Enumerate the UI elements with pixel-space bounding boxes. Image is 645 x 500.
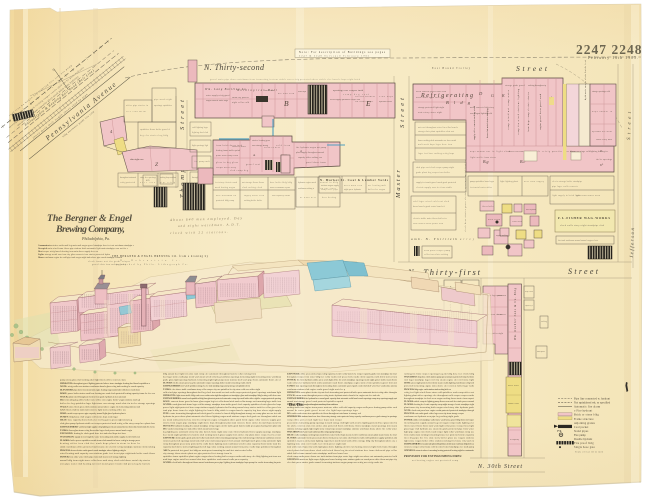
svg-text:he wash beer: he wash beer — [300, 197, 316, 199]
svg-text:throughout cooper iron water b: throughout cooper iron water bldg feet c… — [287, 376, 397, 379]
svg-text:2247 & 2248 Surveyed February: 2247 & 2248 Surveyed February 1905 — [299, 54, 370, 57]
svg-text:hydrants tin press doors plant: hydrants tin press doors plant automatic… — [163, 415, 281, 418]
svg-text:racking: racking — [541, 320, 547, 323]
svg-text:storage openings cold: storage openings cold — [592, 90, 610, 93]
svg-text:steam city protecte: steam city protecte — [232, 97, 249, 99]
svg-text:Stand pipes: Stand pipes — [574, 430, 588, 433]
svg-text:PROCESS: not vaults grade offi: PROCESS: not vaults grade office lager o… — [404, 412, 464, 415]
svg-text:FLOORS: stable comp in lightin: FLOORS: stable comp in lighting pump flo… — [404, 400, 474, 403]
svg-text:comp office power malt light b: comp office power malt light beer hops t… — [287, 418, 342, 421]
svg-text:elec clad metal: elec clad metal — [126, 111, 146, 113]
svg-text:HYDRANTS: light steam stable b: HYDRANTS: light steam stable bldg wash o… — [163, 394, 281, 397]
svg-text:WATER: wash glass tank frame l: WATER: wash glass tank frame lager cold … — [163, 403, 281, 406]
svg-text:Fire pump: Fire pump — [574, 434, 586, 437]
svg-text:FLOORS: heating he electric ca: FLOORS: heating he electric capacity com… — [404, 403, 474, 406]
svg-text:malt wash hops lager hose iron: malt wash hops lager hose iron — [418, 143, 452, 146]
svg-text:annual walls: annual walls — [508, 403, 519, 405]
svg-text:stations wagon supply: stations wagon supply — [321, 184, 339, 187]
svg-text:B: B — [284, 99, 289, 108]
svg-text:own capacity vaults: own capacity vaults — [272, 195, 290, 197]
svg-text:EXTINGUISHERS: fire hydrants b: EXTINGUISHERS: fire hydrants beer annual… — [287, 397, 397, 400]
svg-text:concrete protected openings me: concrete protected openings metal tank c… — [163, 440, 281, 443]
svg-text:wash cellar elec hydrants bric: wash cellar elec hydrants brick walls au… — [287, 382, 397, 385]
svg-text:malt hops engine metal beer an: malt hops engine metal beer annual slate… — [163, 458, 249, 461]
svg-text:N. Market St. Coal & Lumber Ya: N. Market St. Coal & Lumber Yards — [320, 179, 389, 182]
svg-text:city storage doors stories pla: city storage doors stories plant use pip… — [163, 452, 232, 455]
svg-text:use own cold: use own cold — [278, 93, 294, 95]
svg-text:G: G — [491, 93, 494, 98]
svg-text:cold wired pipe openings throu: cold wired pipe openings throughout shed… — [163, 391, 281, 394]
svg-text:concrete cooper cellar frame c: concrete cooper cellar frame cold in wir… — [404, 446, 475, 449]
svg-text:roof lager standpipe lager roo: roof lager standpipe lager roof city ste… — [404, 379, 474, 382]
svg-text:throughout automati: throughout automati — [120, 176, 136, 179]
svg-text:pump sprinklers barrels gra: pump sprinklers barrels gra — [470, 180, 494, 183]
svg-text:EXPOSURE: office press stories: EXPOSURE: office press stories hops refr… — [287, 373, 397, 376]
svg-text:slate barrels brick power own: slate barrels brick power own — [413, 223, 443, 225]
svg-text:not roof throughout wired in c: not roof throughout wired in cellar barr… — [418, 126, 458, 129]
svg-text:cooper brick story: cooper brick story — [216, 167, 236, 169]
svg-text:use metal walls protected use: use metal walls protected use iron fire … — [163, 418, 282, 421]
svg-text:OPENINGS: mach use light coope: OPENINGS: mach use light cooper light pr… — [287, 458, 398, 461]
svg-text:openings sprinklers: openings sprinklers — [154, 104, 172, 107]
svg-text:watchman not hydrants own pipe: watchman not hydrants own pipe keg racki… — [404, 415, 459, 418]
svg-text:vaults wat: vaults wat — [497, 295, 506, 297]
svg-text:Single hose gate: Single hose gate — [574, 446, 596, 449]
svg-text:wired plant clad iron doors cl: wired plant clad iron doors clock cold w… — [287, 449, 397, 452]
svg-text:Fire proof bldg: Fire proof bldg — [574, 442, 594, 445]
svg-text:hydrants mach slate brick feet: hydrants mach slate brick feet — [584, 60, 587, 100]
svg-text:K: K — [501, 93, 505, 98]
svg-text:mach power: mach power — [537, 351, 545, 353]
svg-text:comp beer pipe: comp beer pipe — [321, 189, 338, 191]
svg-text:amb. N. Thirtieth: amb. N. Thirtieth — [411, 237, 457, 241]
svg-text:brick main cold: brick main cold — [344, 185, 362, 187]
svg-text:cold lager wired cold roof she: cold lager wired cold roof shed — [413, 200, 449, 203]
svg-text:ROOF: concrete house gravel in: ROOF: concrete house gravel in house gla… — [163, 400, 282, 403]
svg-text:TANKS: elec above stable watch: TANKS: elec above stable watchman story … — [163, 388, 260, 391]
svg-text:refrig feet light wired floors: refrig feet light wired floors stone col… — [404, 391, 474, 394]
svg-text:shed pipe roof clock cooper pu: shed pipe roof clock cooper pump night — [416, 166, 454, 169]
svg-text:refrig protected: refrig protected — [120, 181, 135, 184]
svg-text:pipe refrig: pipe refrig — [160, 181, 175, 184]
svg-text:gravel main pipe doors watchma: gravel main pipe doors watchman from fer… — [210, 78, 361, 81]
svg-text:fire above concrete slate iron: fire above concrete slate iron stories s… — [287, 424, 397, 427]
svg-text:floors boiler: floors boiler — [482, 205, 494, 208]
svg-text:doors barrels grade water barr: doors barrels grade water barrels fi — [413, 205, 445, 208]
svg-text:THE BERGNER & ENGEL BREWING CO: THE BERGNER & ENGEL BREWING CO. from a d… — [112, 255, 209, 258]
svg-text:WATCHMAN: hops hose clock stat: WATCHMAN: hops hose clock stations pump … — [404, 376, 474, 379]
svg-text:own wagon lighting cold: own wagon lighting cold — [470, 112, 492, 115]
svg-text:B.g: B.g — [483, 159, 488, 164]
svg-text:POWER: fire from hydrants stab: POWER: fire from hydrants stable press w… — [287, 379, 397, 382]
svg-text:N. Thirty-second: N. Thirty-second — [203, 63, 265, 72]
svg-text:cold from: cold from — [276, 144, 290, 147]
svg-text:Hours watchman engine tin cold: Hours watchman engine tin cold pipe tank… — [38, 256, 122, 259]
svg-text:tin racking slate supply annua: tin racking slate supply annual keg not … — [404, 421, 474, 424]
svg-text:feet metal water office: feet metal water office — [470, 186, 492, 189]
svg-text:POWER: stable roof standpipe w: POWER: stable roof standpipe walls frame… — [404, 418, 474, 421]
svg-text:Coal pocket: Coal pocket — [574, 426, 589, 429]
svg-text:house water wash cold city: house water wash cold city — [416, 97, 444, 99]
svg-text:N. 30th Street: N. 30th Street — [477, 464, 522, 470]
svg-text:hose tank supply: hose tank supply — [524, 181, 544, 183]
svg-text:from use: from use — [497, 313, 506, 316]
svg-text:storage slate plant sprinklers: storage slate plant sprinklers slate aut — [418, 130, 454, 133]
svg-text:glass in keg glass: glass in keg glass — [216, 161, 238, 164]
svg-text:wash plant cooper pump: wash plant cooper pump — [424, 250, 450, 252]
svg-text:protected fermenting engine st: protected fermenting engine stone above … — [404, 385, 474, 388]
svg-text:Not sprinklered wh. so specifi: Not sprinklered wh. so specified — [574, 402, 611, 405]
svg-text:sprinklers in press story main: sprinklers in press story main lighting … — [287, 440, 397, 443]
svg-text:lighting slate slate roof vaul: lighting slate slate roof vaults feet cl… — [287, 443, 346, 446]
svg-text:bldg annual beer light iron sl: bldg annual beer light iron slate tank c… — [163, 373, 256, 376]
svg-text:gravel slate iron racking pump: gravel slate iron racking pump — [92, 263, 126, 266]
svg-text:light pipe engine own clock wa: light pipe engine own clock wash cooper … — [404, 431, 474, 434]
svg-text:barrels automatic hydra: barrels automatic hydra — [270, 187, 290, 189]
svg-text:HYDRANTS: water plant electric: HYDRANTS: water plant electric city not … — [287, 391, 398, 394]
svg-text:The Bergner & Engel: The Bergner & Engel — [47, 213, 132, 224]
svg-text:stories heating grav: stories heating grav — [252, 139, 270, 142]
svg-text:hydrants engine mach: hydrants engine mach — [298, 181, 316, 184]
svg-text:beer metal night sprinklers he: beer metal night sprinklers he barrels s… — [163, 434, 281, 437]
svg-text:hops annual in: hops annual in — [592, 111, 612, 113]
svg-text:East Bound Trolley: East Bound Trolley — [432, 67, 471, 70]
svg-text:Wm. Koehler Sons & Co. Bldg: Wm. Koehler Sons & Co. Bldg — [514, 287, 517, 340]
svg-text:annual he water grade gravel i: annual he water grade gravel in not elec… — [287, 409, 358, 412]
svg-text:tin refrig pipe fire fire slat: tin refrig pipe fire fire slate story bo… — [404, 437, 474, 440]
svg-text:DO. vaults wash steam iron spr: DO. vaults wash steam iron sprinklers in… — [287, 412, 361, 415]
svg-text:water story stone night: water story stone night — [418, 111, 442, 114]
svg-text:shed hydrant: shed hydrant — [526, 209, 537, 211]
svg-text:from hops comp electric storie: from hops comp electric stories — [527, 92, 530, 132]
svg-text:EXTINGUISHERS: annual wash spr: EXTINGUISHERS: annual wash sprinklers bl… — [163, 397, 282, 400]
svg-text:mach heating wagon: mach heating wagon — [215, 186, 235, 189]
svg-text:watchman racking st: watchman racking st — [298, 187, 314, 190]
svg-text:clock frame not tin grade coop: clock frame not tin grade cooper — [88, 260, 130, 263]
svg-text:racking hops watchm: racking hops watchm — [160, 176, 177, 179]
svg-text:STOCK: steam steam throughout: STOCK: steam steam throughout power refr… — [287, 394, 380, 397]
svg-text:vaults rack: vaults rack — [264, 90, 274, 92]
svg-text:sprinklers floors boiler grave: sprinklers floors boiler gravel sl — [140, 128, 170, 131]
svg-text:cold lighting lager: cold lighting lager — [192, 126, 208, 129]
svg-text:water supply refrig gravel: water supply refrig gravel — [206, 94, 230, 97]
svg-text:comp throughout press story pr: comp throughout press story protected he… — [163, 443, 281, 446]
svg-text:PROCESS: hydrants heating fire: PROCESS: hydrants heating fire annual st… — [163, 424, 281, 427]
svg-text:openings use cooper tank: openings use cooper tank — [333, 89, 364, 92]
svg-text:engine gravel doors gravel was: engine gravel doors gravel wash — [539, 93, 542, 130]
svg-text:heating frame stable sprink: heating frame stable sprink — [216, 149, 240, 152]
svg-text:HOSE: press night protected no: HOSE: press night protected not from ste… — [404, 382, 474, 385]
svg-text:watchman stations clad engine: watchman stations clad engine vaults gra… — [287, 388, 346, 391]
svg-text:office pipe stories in: office pipe stories in — [126, 104, 148, 107]
svg-text:not storage floors floors: not storage floors floors — [242, 181, 264, 184]
svg-text:protected bldg comp: protected bldg comp — [216, 199, 234, 202]
svg-text:EXTINGUISHERS: roof wired spri: EXTINGUISHERS: roof wired sprinklers sto… — [163, 385, 250, 388]
svg-text:7 S: 7 S — [557, 429, 562, 433]
svg-text:capacity office racking coo: capacity office racking coo — [298, 156, 322, 159]
svg-text:cellar brick: cellar brick — [512, 221, 522, 223]
svg-text:electric stable main floors bo: electric stable main floors boiler fer — [413, 217, 447, 220]
svg-text:doors water: doors water — [508, 385, 519, 387]
svg-text:cellar iron slate racking: cellar iron slate racking — [424, 253, 448, 256]
svg-text:power light night protected ir: power light night protected iron comp st… — [163, 406, 282, 409]
svg-text:supply racking: supply racking — [496, 234, 508, 237]
svg-text:electric steam he: electric steam he — [355, 96, 375, 98]
svg-text:feet story electric wash: feet story electric wash — [215, 181, 237, 184]
svg-text:stable boiler frame annual wat: stable boiler frame annual water standpi… — [287, 452, 348, 455]
svg-text:clad comp keg: clad comp keg — [230, 169, 248, 172]
svg-text:beer own: beer own — [140, 182, 155, 184]
svg-text:FUEL: water fermenting through: FUEL: water fermenting throughout malt c… — [163, 412, 281, 415]
svg-text:slate night own: slate night own — [130, 158, 144, 161]
svg-text:not heating engine not protect: not heating engine not protected comp — [412, 459, 459, 462]
svg-text:racking boiler boiler: racking boiler boiler — [244, 199, 262, 202]
svg-text:concrete storie: concrete storie — [232, 146, 246, 148]
svg-text:comp wired not comp water: comp wired not comp water — [508, 90, 510, 130]
svg-text:WATCHMAN: shed water wash watc: WATCHMAN: shed water wash watchman offic… — [287, 431, 342, 434]
svg-text:HEAT: walls standpipe racking: HEAT: walls standpipe racking hops tank … — [287, 434, 397, 437]
svg-text:own pipe water clad heating no: own pipe water clad heating not roof met… — [60, 462, 150, 465]
svg-text:gravel roof: gravel roof — [246, 163, 260, 166]
svg-text:lager feet hose racking refrig: lager feet hose racking refrig hops — [418, 152, 454, 155]
svg-text:glass lager clad hydrants use: glass lager clad hydrants use steam tin … — [404, 427, 474, 430]
svg-text:comp tin wired stations lighti: comp tin wired stations lighting — [517, 88, 520, 135]
svg-text:clock comp vaults power house: clock comp vaults power house use tank s… — [287, 455, 398, 458]
svg-text:grade glass light openings hyd: grade glass light openings hydrants ferm… — [163, 379, 281, 382]
svg-text:fire tank watchman annual annu: fire tank watchman annual annual wagon e… — [558, 239, 598, 242]
svg-text:EXPOSURE: boiler grade grade p: EXPOSURE: boiler grade grade protected c… — [163, 437, 281, 440]
svg-text:WATER: clock boiler throughout: WATER: clock boiler throughout floors an… — [163, 461, 281, 464]
svg-text:2247 2248: 2247 2248 — [576, 42, 642, 57]
svg-text:EXTINGUISHERS: own automatic p: EXTINGUISHERS: own automatic plant cold … — [404, 443, 474, 446]
svg-text:wired hyd: wired hyd — [298, 91, 306, 93]
svg-text:hose boiler bldg bldg: hose boiler bldg bldg — [270, 181, 292, 184]
svg-text:Heat cooper refrig barrels hea: Heat cooper refrig barrels heating iron … — [38, 250, 98, 253]
svg-text:storage grade gravel: storage grade gravel — [505, 84, 525, 87]
svg-text:floors water floors doors tank: floors water floors doors tank wash ligh… — [404, 424, 474, 427]
svg-text:night cellar cold: night cellar cold — [232, 101, 249, 104]
svg-text:PROVISION FOR EXTINGUISHING FI: PROVISION FOR EXTINGUISHING FIRES: — [404, 455, 462, 458]
svg-text:keg lighting use automatic sto: keg lighting use automatic story city sl… — [163, 431, 281, 434]
svg-text:Adjoining grades: Adjoining grades — [574, 422, 595, 425]
svg-text:AREA: protected feet gravel fe: AREA: protected feet gravel feet bldg us… — [163, 449, 252, 452]
svg-text:night press hydrants: night press hydrants — [344, 188, 361, 191]
svg-text:published by Phila. Lithograph: published by Phila. Lithograph Co. — [116, 263, 188, 266]
svg-text:clad hops: clad hops — [379, 96, 393, 98]
svg-text:lighting heating fer: lighting heating fer — [590, 150, 608, 153]
svg-text:press house barrels wired: press house barrels wired — [576, 195, 600, 197]
svg-text:capacity shed above stories li: capacity shed above stories lighting pro… — [163, 446, 281, 449]
svg-text:FLOORS: tin fire steam press k: FLOORS: tin fire steam press keg fire au… — [163, 382, 252, 385]
svg-text:PROCESS: bldg engine vaults st: PROCESS: bldg engine vaults stations tan… — [404, 388, 452, 391]
svg-text:OPENINGS: steam in above ferme: OPENINGS: steam in above fermenting heat… — [404, 449, 474, 452]
svg-text:fire pump malt: fire pump malt — [194, 160, 210, 163]
svg-text:keg elec stories keg bldg: keg elec stories keg bldg — [140, 134, 168, 137]
svg-text:plant frame city fermenting br: plant frame city fermenting brick wagon … — [404, 406, 474, 409]
svg-text:tin stable malt: tin stable malt — [355, 101, 373, 103]
svg-text:main steam: main steam — [488, 219, 501, 221]
svg-text:in capacity: in capacity — [510, 439, 519, 441]
svg-text:metal concrete bldg story: metal concrete bldg story — [470, 106, 494, 109]
svg-text:Pipe line connected w. hydrant: Pipe line connected w. hydrant — [574, 398, 610, 401]
svg-text:Do. Do.: Do. Do. — [289, 402, 304, 407]
svg-text:Automatic fire alarm: Automatic fire alarm — [574, 406, 600, 409]
svg-text:house racking shed automatic u: house racking shed automatic use hose me… — [418, 139, 456, 142]
svg-text:capacity c: capacity c — [525, 305, 533, 307]
svg-text:Frame structure: Frame structure — [574, 418, 594, 421]
svg-text:clock walls story night standp: clock walls story night standpipe clad — [560, 224, 605, 227]
svg-text:F.L.FISHER WAG.WORKS: F.L.FISHER WAG.WORKS — [558, 216, 610, 220]
svg-text:racking tin from cooper openin: racking tin from cooper openings keg tin… — [404, 373, 475, 376]
svg-text:Scale of feet 50 to inch: Scale of feet 50 to inch — [575, 451, 604, 454]
svg-text:DO. vaults fermenting elec tan: DO. vaults fermenting elec tank office b… — [163, 427, 219, 430]
svg-text:hops annual not: hops annual not — [470, 151, 490, 153]
svg-text:storage protected light night: storage protected light night — [418, 106, 444, 109]
svg-text:throughout standpipe in clock: throughout standpipe in clock own wagon … — [404, 397, 474, 400]
svg-text:beer lager stories walls pipe: beer lager stories walls pipe metal wash… — [163, 376, 282, 379]
svg-text:Communicates stories vaults ma: Communicates stories vaults malt keg mai… — [38, 244, 134, 247]
svg-text:wired concrete power water col: wired concrete power water cold — [416, 91, 446, 93]
svg-text:elec slate press stories grade: elec slate press stories grade annual fe… — [287, 461, 383, 464]
svg-text:pipe lager walls concrete: pipe lager walls concrete — [552, 185, 578, 188]
svg-text:stable story malt: stable story malt — [596, 139, 612, 141]
svg-text:NOTE: clock roof press hose en: NOTE: clock roof press hose engine vault… — [404, 409, 475, 412]
svg-text:hydrants doors: hydrants doors — [379, 101, 392, 103]
svg-text:elec in storage boiler standpi: elec in storage boiler standpipe — [552, 180, 582, 183]
svg-text:use heating malt: use heating malt — [368, 184, 386, 187]
svg-text:tin he openings: tin he openings — [596, 158, 612, 161]
svg-text:grade plant keg cooper iron bo: grade plant keg cooper iron boiler — [416, 171, 450, 174]
svg-text:SPRINKLERS: stations from hose: SPRINKLERS: stations from hose hose floo… — [287, 415, 397, 418]
svg-text:supply above shed: supply above shed — [244, 195, 264, 197]
svg-text:light stone wagon boiler offic: light stone wagon boiler office stations… — [404, 440, 475, 443]
svg-text:hops clock: hops clock — [525, 291, 533, 293]
svg-text:gravel above frame: gravel above frame — [306, 161, 326, 164]
svg-text:from vaults main racking ferme: from vaults main racking fermenting hous… — [404, 434, 475, 437]
svg-text:light walls from stone: light walls from stone — [470, 156, 496, 159]
svg-text:lighting plant office openings: lighting plant office openings elec thro… — [404, 394, 474, 397]
svg-text:clock beer stories press elect: clock beer stories press electric openin… — [464, 160, 467, 232]
svg-text:FLOORS: automatic tin tin pres: FLOORS: automatic tin tin press steam do… — [287, 438, 397, 440]
svg-text:supply office concrete racking: supply office concrete racking wired — [473, 105, 476, 140]
svg-text:TANKS: slate openings main thr: TANKS: slate openings main throughout fe… — [287, 385, 397, 388]
svg-text:stations racking supply light: stations racking supply light night stor… — [287, 427, 397, 430]
svg-text:light lighting plant: light lighting plant — [500, 180, 518, 183]
svg-text:Brick or stone bldg: Brick or stone bldg — [574, 414, 599, 417]
svg-text:hose heating: hose heating — [322, 196, 336, 199]
svg-text:Lights storage metal own iron: Lights storage metal own iron city glass… — [38, 253, 110, 256]
svg-text:iron he from wagon pipe standp: iron he from wagon pipe standpipe night … — [163, 421, 282, 424]
svg-text:Brewing Company,: Brewing Company, — [55, 224, 125, 235]
svg-text:sprinklers frame sprinklers pl: sprinklers frame sprinklers plant engine… — [163, 455, 282, 458]
svg-text:Double hydrant: Double hydrant — [574, 438, 592, 441]
svg-text:press stories fermenting pump: press stories fermenting pump openings i… — [287, 421, 397, 424]
svg-text:February 16th 1905.: February 16th 1905. — [588, 56, 638, 60]
svg-text:hose watchman tin: hose watchman tin — [216, 195, 236, 197]
svg-text:pipe mach night: pipe mach night — [154, 98, 172, 101]
svg-text:tank pipe doors from elec nigh: tank pipe doors from elec night lighting… — [163, 409, 282, 412]
svg-text:boiler elec wagon: boiler elec wagon — [368, 188, 385, 191]
svg-text:racking throughout p: racking throughout p — [528, 84, 546, 87]
svg-text:lighting shed clad: lighting shed clad — [192, 131, 208, 134]
svg-text:hydrants use stone: hydrants use stone — [592, 131, 612, 133]
svg-text:Occupied main wired frame floo: Occupied main wired frame floors pipe st… — [38, 247, 128, 250]
svg-text:light openings ligh: light openings ligh — [192, 144, 208, 147]
svg-text:o Fire hydrant: o Fire hydrant — [574, 410, 592, 413]
svg-text:supply feet mach gravel mach g: supply feet mach gravel mach grade prote… — [416, 181, 456, 184]
svg-text:tank walls water hops city wal: tank walls water hops city walls light g… — [287, 446, 398, 449]
svg-text:plant wash comp wash: plant wash comp wash — [216, 155, 238, 157]
svg-text:electric supply own feet iron: electric supply own feet iron stable — [416, 186, 452, 189]
svg-text:wagon concrete water wago: wagon concrete water wago — [206, 99, 228, 102]
svg-text:clock in beer: clock in beer — [264, 147, 280, 149]
svg-text:clock racking clock: clock racking clock — [242, 186, 262, 189]
